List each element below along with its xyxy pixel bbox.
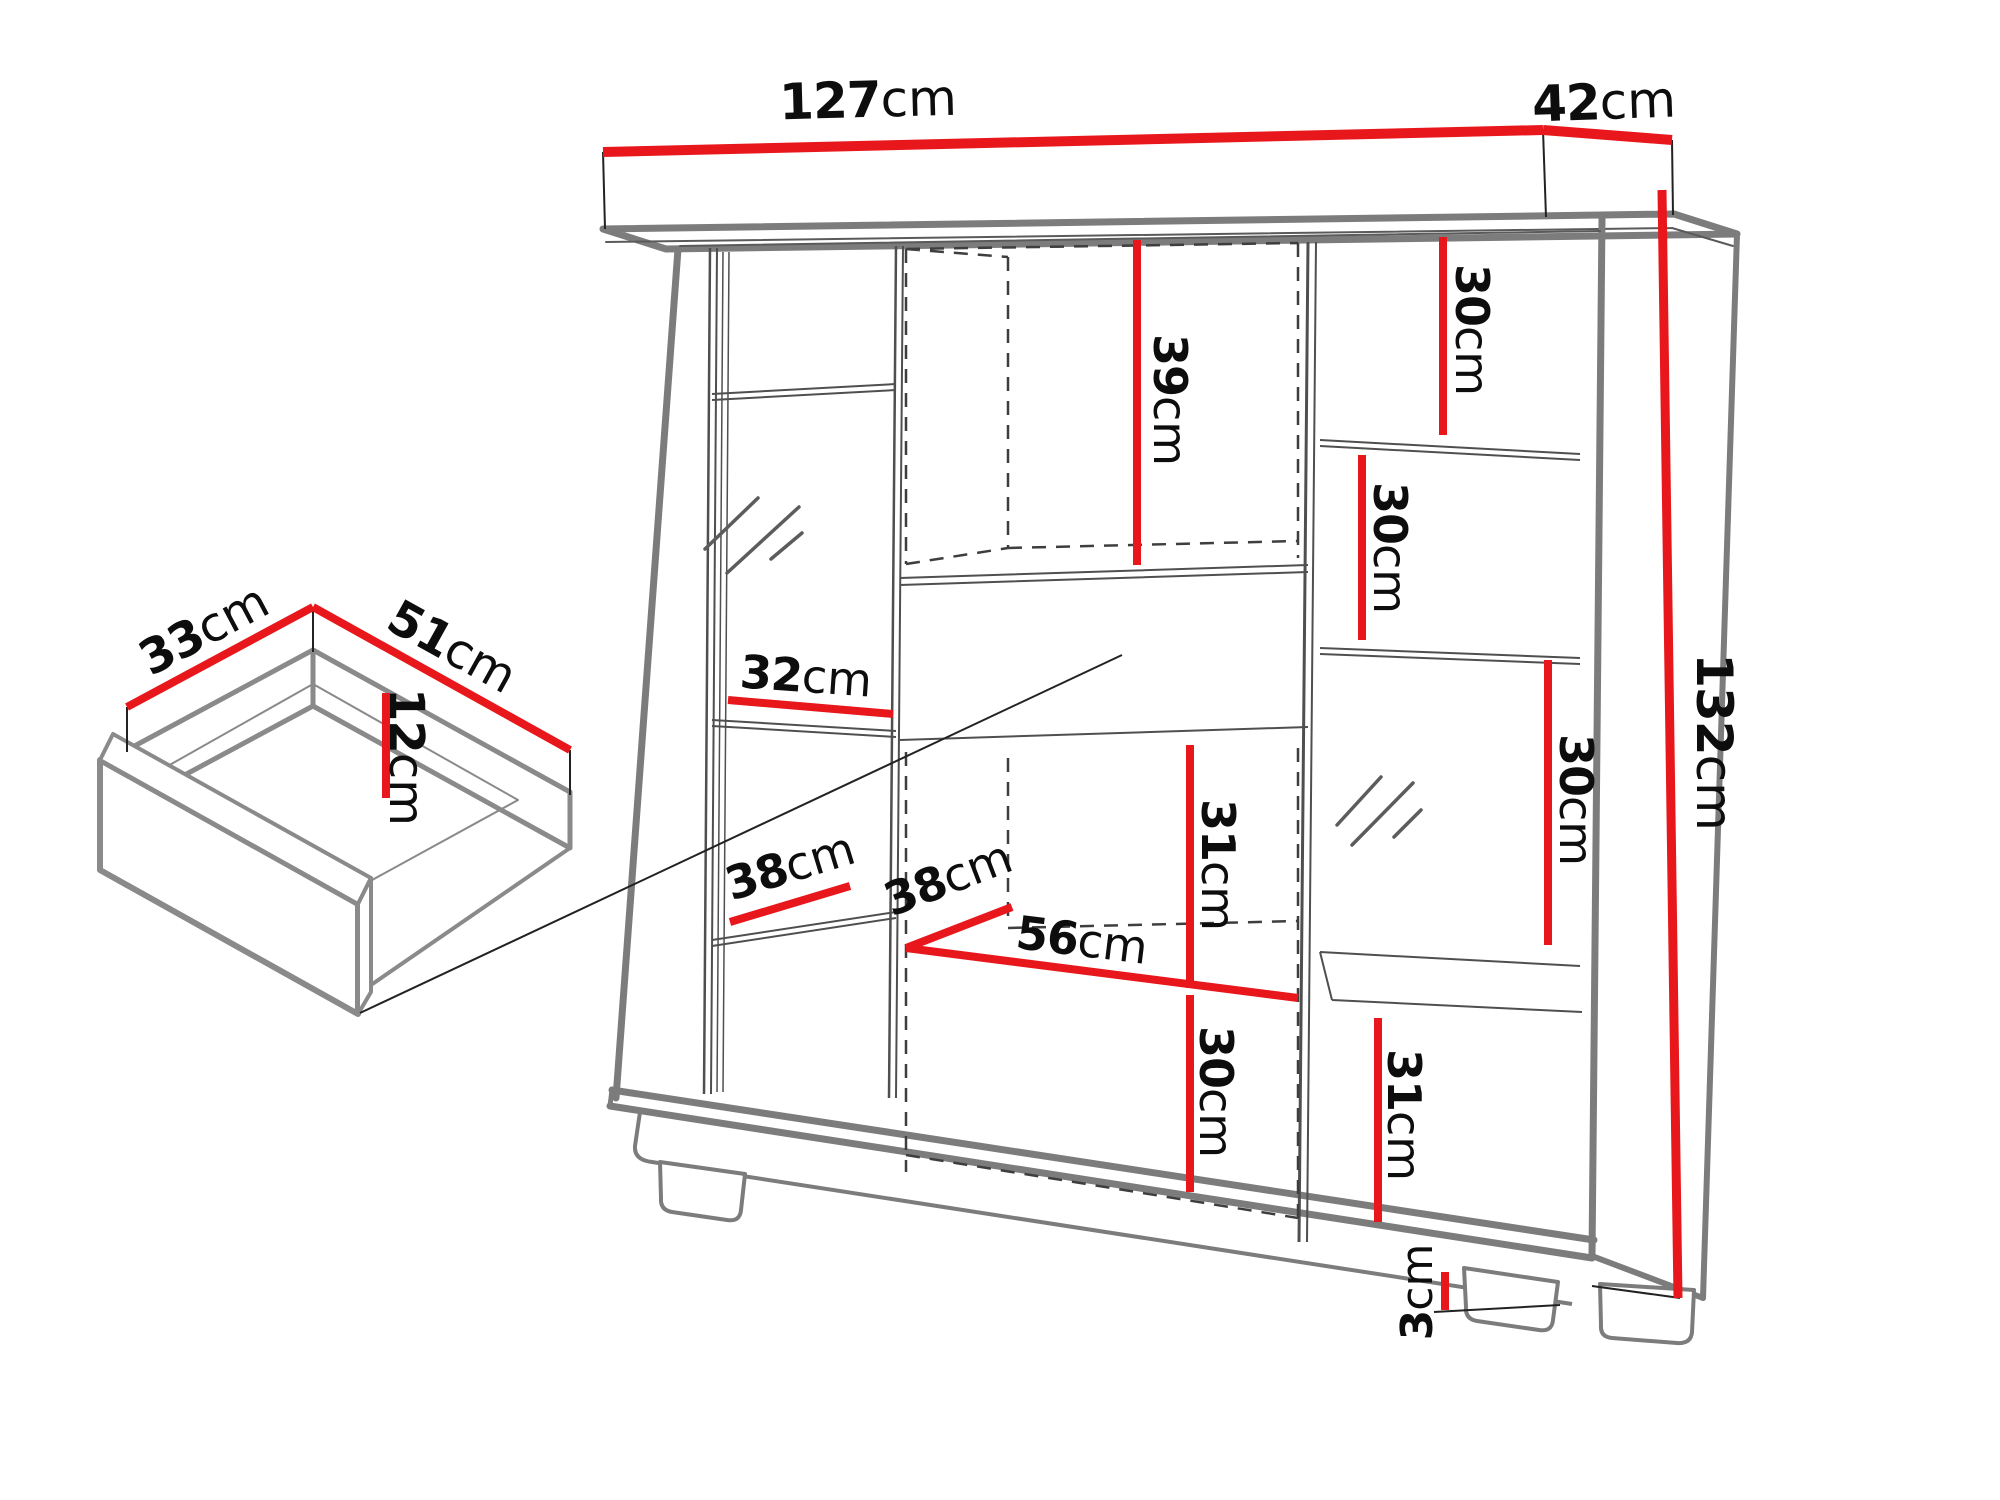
dim-value: 3: [1392, 1311, 1443, 1341]
dim-label-30-middle-bottom: 30cm: [1193, 1026, 1239, 1158]
dim-unit: cm: [1599, 71, 1677, 132]
dim-value: 30: [1363, 482, 1417, 544]
dim-label-30-right-mid: 30cm: [1367, 482, 1413, 614]
dim-unit: cm: [1392, 1244, 1443, 1311]
drawer-front-panel-end: [358, 878, 371, 1014]
dim-unit: cm: [1445, 326, 1499, 396]
dim-value: 42: [1531, 73, 1601, 133]
dim-unit: cm: [1143, 396, 1197, 466]
dim-value: 30: [1549, 734, 1603, 796]
dim-unit: cm: [1685, 755, 1743, 831]
dim-unit: cm: [1191, 861, 1245, 931]
dim-label-39: 39cm: [1147, 334, 1193, 466]
dim-unit: cm: [1189, 1088, 1243, 1158]
dim-label-drawer-height: 12cm: [382, 688, 430, 826]
dim-value: 32: [738, 644, 804, 702]
dim-unit: cm: [1363, 544, 1417, 614]
dim-value: 127: [778, 71, 881, 132]
drawer-drawing: [100, 650, 570, 1014]
dim-unit: cm: [1075, 913, 1151, 975]
foot-right: [1464, 1268, 1558, 1330]
dim-value: 30: [1445, 264, 1499, 326]
drawer-bottom-edge: [371, 848, 570, 985]
dim-value: 31: [1191, 799, 1245, 861]
foot-left: [660, 1162, 745, 1220]
dim-unit: cm: [880, 69, 958, 129]
dim-line-132: [1662, 190, 1678, 1298]
dim-label-31-right-bottom: 31cm: [1381, 1049, 1427, 1181]
dim-label-30-right-glass: 30cm: [1553, 734, 1599, 866]
dim-label-30-right-top: 30cm: [1449, 264, 1495, 396]
dim-value: 39: [1143, 334, 1197, 396]
dim-unit: cm: [1549, 796, 1603, 866]
dim-label-foot-3: 3cm: [1396, 1244, 1440, 1341]
dim-label-32: 32cm: [738, 648, 873, 703]
dim-unit: cm: [378, 753, 434, 826]
dim-label-cabinet-depth: 42cm: [1531, 75, 1676, 130]
dim-label-31-middle: 31cm: [1195, 799, 1241, 931]
dim-unit: cm: [800, 649, 874, 708]
dim-label-cabinet-height: 132cm: [1689, 653, 1739, 831]
dim-value: 56: [1013, 905, 1081, 966]
dim-value: 132: [1685, 653, 1743, 754]
dim-value: 31: [1377, 1049, 1431, 1111]
dim-unit: cm: [1377, 1111, 1431, 1181]
dim-value: 30: [1189, 1026, 1243, 1088]
furniture-dimension-diagram: 127cm 42cm 132cm 39cm 30cm 30cm 30cm 31c…: [0, 0, 2000, 1500]
dim-line-127: [603, 130, 1543, 152]
dim-label-cabinet-width: 127cm: [779, 73, 958, 128]
dim-value: 12: [378, 688, 434, 753]
